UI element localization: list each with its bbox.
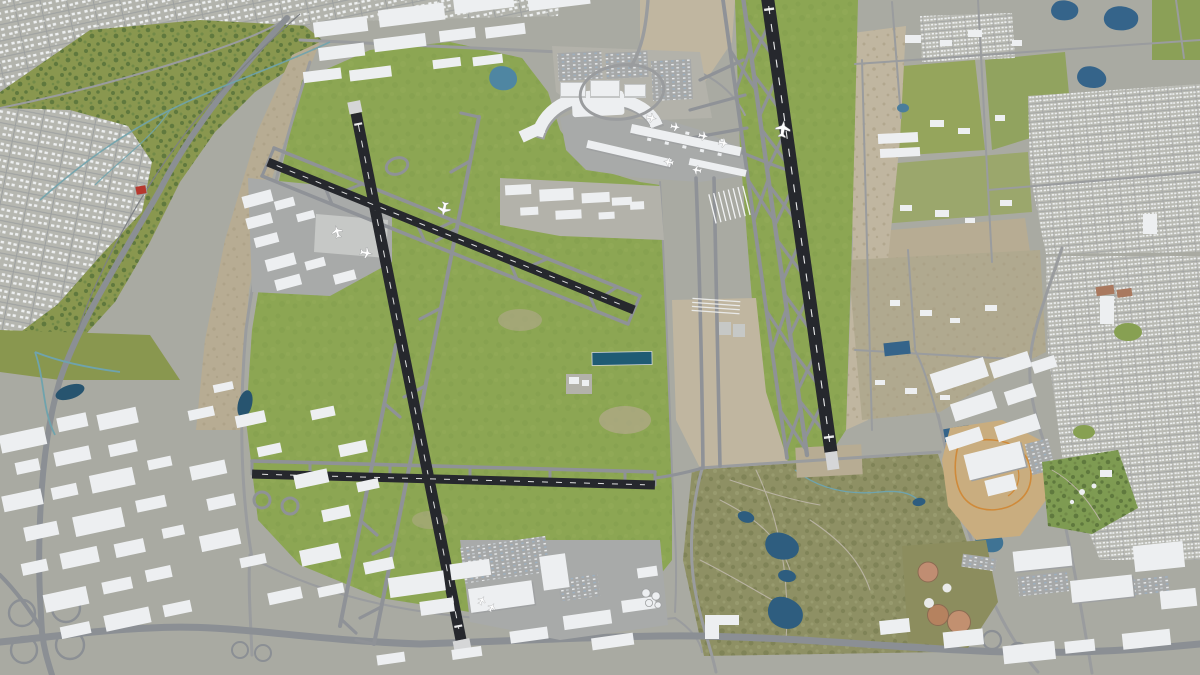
residential-dense-northeast [1028, 84, 1200, 254]
pond-northeast-4 [897, 104, 909, 113]
retention-basin-central [592, 351, 652, 365]
holding-pad-2 [733, 324, 745, 337]
big-building-northeast [1143, 214, 1157, 234]
red-building [135, 185, 147, 196]
tall-building-residential [1100, 296, 1114, 324]
map-canvas[interactable] [0, 0, 1200, 675]
retention-basin-east-1 [883, 341, 910, 357]
utility-compound [566, 374, 592, 394]
aerial-map-view: 3D aerial city model render of a large i… [0, 0, 1200, 675]
green-pocket-southeast [1114, 323, 1142, 341]
holding-pad-1 [719, 322, 731, 335]
green-pocket-southeast-2 [1073, 425, 1095, 439]
